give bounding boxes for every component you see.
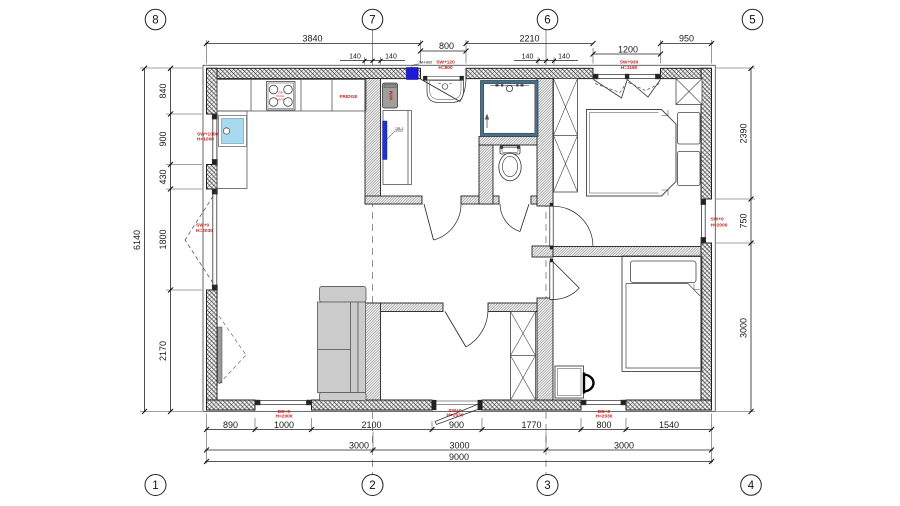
svg-text:3000: 3000 (739, 318, 749, 338)
svg-text:2210: 2210 (519, 34, 539, 44)
svg-text:H=1180: H=1180 (621, 65, 638, 71)
svg-text:H=2030: H=2030 (447, 412, 464, 418)
svg-text:140: 140 (349, 54, 361, 61)
svg-text:800: 800 (596, 420, 611, 430)
svg-text:3840: 3840 (302, 34, 322, 44)
svg-text:7: 7 (369, 14, 375, 26)
svg-text:1000: 1000 (274, 420, 294, 430)
svg-text:140: 140 (522, 54, 534, 61)
svg-text:6: 6 (544, 14, 550, 26)
svg-text:H=2000: H=2000 (711, 222, 728, 228)
svg-text:1800: 1800 (158, 229, 168, 249)
svg-text:3000: 3000 (449, 441, 469, 451)
svg-text:1770: 1770 (521, 420, 541, 430)
svg-text:H=2030: H=2030 (196, 228, 213, 234)
svg-text:3: 3 (544, 480, 550, 492)
svg-text:1200: 1200 (618, 44, 638, 54)
svg-text:SW+0: SW+0 (711, 217, 725, 223)
svg-text:900: 900 (158, 131, 168, 146)
svg-text:2390: 2390 (739, 123, 749, 143)
svg-text:900: 900 (449, 420, 464, 430)
svg-text:2100: 2100 (361, 420, 381, 430)
svg-text:4: 4 (748, 480, 755, 492)
svg-text:8: 8 (152, 14, 158, 26)
svg-text:840: 840 (158, 83, 168, 98)
svg-text:2170: 2170 (158, 341, 168, 361)
svg-text:5: 5 (749, 14, 755, 26)
svg-text:140: 140 (558, 54, 570, 61)
svg-text:2: 2 (369, 480, 375, 492)
svg-text:DB-1: DB-1 (396, 127, 404, 131)
svg-text:890: 890 (223, 420, 238, 430)
svg-text:SW+120: SW+120 (436, 60, 455, 66)
svg-text:FRIDGE: FRIDGE (339, 94, 358, 100)
svg-text:WH-800: WH-800 (419, 61, 432, 65)
svg-text:H=2030: H=2030 (596, 414, 613, 420)
svg-text:H=800: H=800 (438, 65, 453, 71)
svg-text:6140: 6140 (132, 230, 142, 250)
svg-text:430: 430 (158, 169, 168, 184)
svg-text:1540: 1540 (659, 420, 679, 430)
svg-text:800: 800 (439, 41, 454, 51)
svg-text:950: 950 (679, 34, 694, 44)
svg-text:3000: 3000 (349, 441, 369, 451)
svg-text:1: 1 (152, 480, 158, 492)
svg-text:140: 140 (385, 54, 397, 61)
svg-text:3000: 3000 (614, 441, 634, 451)
svg-text:9000: 9000 (449, 452, 469, 462)
svg-text:W/M: W/M (389, 91, 395, 101)
svg-text:H=2000: H=2000 (276, 414, 293, 420)
svg-text:SW+930: SW+930 (620, 60, 639, 66)
svg-text:H=1000: H=1000 (197, 136, 214, 142)
svg-text:SW+0: SW+0 (196, 223, 210, 229)
svg-text:VENT: VENT (276, 98, 284, 102)
svg-text:750: 750 (739, 213, 749, 228)
